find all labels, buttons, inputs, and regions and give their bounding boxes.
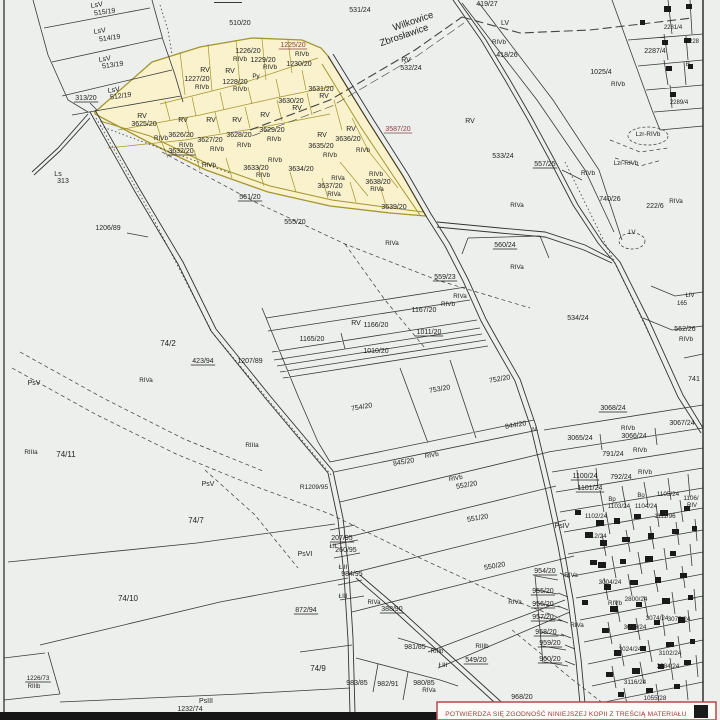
parcel-label: LV — [501, 20, 509, 27]
parcel-label: RIV — [687, 503, 697, 509]
parcel-label: 514/19 — [99, 34, 121, 44]
parcel-label: RIVb — [295, 51, 309, 58]
parcel-label: 752/20 — [489, 374, 511, 385]
parcel-label: 552/20 — [456, 480, 478, 491]
parcel-label: PsVI — [298, 551, 313, 558]
parcel-label: RIVa — [385, 240, 399, 247]
parcel-label: 2281/4 — [664, 25, 683, 31]
parcel-label: 1167/20 — [412, 307, 437, 314]
parcel-label: 792/24 — [610, 474, 632, 481]
parcel-label: R1209/95 — [300, 484, 329, 491]
parcel-label: 983/85 — [346, 680, 368, 687]
parcel-label: 2800/24 — [625, 596, 648, 603]
parcel-label: 3627/20 — [197, 137, 222, 144]
parcel-label: RIVa — [510, 202, 524, 209]
parcel-label: RIIIb — [28, 684, 41, 690]
parcel-label: 912/24 — [587, 533, 607, 540]
parcel-label: B — [686, 61, 690, 68]
parcel-label: 1225/20 — [280, 42, 305, 49]
parcel-label: RIVb — [638, 469, 652, 476]
parcel-label: 1165/20 — [300, 336, 325, 343]
parcel-label: RV — [351, 320, 361, 327]
parcel-label: Ls — [54, 171, 62, 178]
parcel-label: RIVb — [195, 84, 209, 91]
parcel-label: 741 — [688, 376, 700, 383]
parcel-label: PsIII — [199, 698, 213, 705]
parcel-label: 3074/24 — [646, 615, 669, 622]
parcel-label: RIVb — [424, 451, 439, 460]
parcel-label: 845/20 — [393, 457, 415, 468]
parcel-label: 1226/73 — [27, 675, 50, 682]
parcel-label: 1101/24 — [578, 485, 603, 492]
parcel-label: 207/95 — [331, 535, 353, 542]
parcel-label: 968/20 — [511, 694, 533, 701]
parcel-label: RIVb — [268, 157, 282, 164]
parcel-label: 531/24 — [349, 7, 371, 14]
parcel-label: 955/20 — [532, 588, 554, 595]
parcel-label: ŁIII — [339, 593, 348, 600]
parcel-label: RIVa — [368, 600, 382, 606]
parcel-label: 791/24 — [602, 451, 624, 458]
parcel-label: 3639/20 — [381, 204, 406, 211]
parcel-label: 3073/24 — [624, 624, 647, 631]
parcel-label: RIIIb — [431, 649, 444, 655]
parcel-label: 228 — [689, 39, 700, 45]
parcel-label: 1226/20 — [235, 48, 260, 55]
parcel-label: 1106/ — [683, 495, 699, 502]
parcel-label: 549/20 — [465, 657, 487, 664]
parcel-label: RIVb — [233, 56, 247, 63]
parcel-label: RIVb — [323, 152, 337, 159]
parcel-label: 956/20 — [532, 601, 554, 608]
parcel-label: 3626/20 — [168, 132, 193, 139]
parcel-label: Bo — [637, 493, 645, 499]
parcel-label: RIVb — [210, 146, 224, 153]
parcel-label: 1103/24 — [608, 503, 631, 510]
parcel-label: 980/85 — [413, 680, 435, 687]
parcel-label: 1229/20 — [250, 57, 275, 64]
parcel-label: Lzr-RIVb — [614, 160, 639, 167]
parcel-label: 423/94 — [192, 358, 214, 365]
parcel-label: RV — [232, 117, 242, 124]
parcel-label: RIVa — [370, 186, 384, 193]
parcel-label: 2289/4 — [670, 100, 689, 106]
parcel-label: 3066/24 — [621, 433, 646, 440]
parcel-label: 313 — [57, 178, 69, 185]
parcel-label: 510/20 — [229, 20, 251, 27]
parcel-label: Lzr-RIVb — [636, 131, 661, 138]
parcel-label: RIVb — [611, 81, 625, 88]
parcel-label: 954/20 — [534, 568, 556, 575]
parcel-label: 561/20 — [239, 194, 261, 201]
parcel-label: RIVb — [633, 447, 647, 454]
parcel-label: RIVa — [327, 191, 341, 198]
parcel-label: 260/95 — [335, 547, 357, 554]
parcel-label: RIVb — [608, 600, 622, 607]
parcel-label: RIVb — [154, 135, 168, 142]
parcel-label: RIVb — [202, 162, 216, 169]
parcel-label: 959/20 — [539, 640, 561, 647]
parcel-label: RV — [317, 132, 327, 139]
parcel-label: 532/24 — [400, 65, 422, 72]
parcel-label: 3632/20 — [168, 148, 193, 155]
parcel-label: 559/23 — [434, 274, 456, 281]
parcel-label: 560/24 — [494, 242, 516, 249]
parcel-label: 74/7 — [188, 516, 204, 525]
parcel-label: LV — [628, 229, 636, 236]
parcel-label: 1206/89 — [95, 225, 120, 232]
parcel-label: 3625/20 — [131, 121, 156, 128]
parcel-label: RIVa — [564, 572, 578, 579]
parcel-label: PsV — [202, 481, 215, 488]
parcel-label: 555/20 — [284, 219, 306, 226]
parcel-label: 957/20 — [532, 614, 554, 621]
parcel-label: 562/26 — [674, 326, 696, 333]
parcel-label: RIVa — [139, 377, 153, 384]
parcel-label: 1230/20 — [286, 61, 311, 68]
parcel-label: RIVa — [508, 599, 522, 606]
parcel-label: RIVb — [263, 64, 277, 71]
parcel-label: RIVa — [669, 198, 683, 205]
parcel-label: 1166/20 — [364, 322, 389, 329]
parcel-label: 1232/74 — [177, 706, 202, 713]
parcel-label: 984/95 — [341, 571, 363, 578]
parcel-label: 960/20 — [539, 656, 561, 663]
parcel-label: 3065/24 — [567, 435, 592, 442]
parcel-label: 557/25 — [534, 161, 556, 168]
parcel-label: 74/10 — [118, 594, 139, 603]
parcel-label: 844/20 — [505, 420, 527, 431]
parcel-label: 550/20 — [484, 561, 506, 572]
parcel-label: 1011/20 — [417, 329, 442, 336]
parcel-label: 222/6 — [646, 203, 664, 210]
parcel-label: 754/20 — [351, 402, 373, 413]
parcel-label: PsIV — [555, 523, 570, 530]
parcel-label: 3637/20 — [317, 183, 342, 190]
parcel-label: 3635/20 — [308, 143, 333, 150]
parcel-label: 1105/24 — [657, 491, 680, 498]
parcel-label: RIVa — [422, 687, 436, 694]
cadastral-map-canvas: POTWIERDZA SIĘ ZGODNOŚĆ NINIEJSZEJ KOPII… — [0, 0, 720, 720]
parcel-label: 3067/24 — [669, 420, 694, 427]
parcel-label: RIVb — [233, 86, 247, 93]
parcel-label: RIVa — [570, 622, 584, 629]
parcel-label: RIVb — [448, 474, 463, 483]
parcel-label: ŁIV — [685, 293, 694, 299]
parcel-label: 981/85 — [404, 644, 426, 651]
parcel-label: 419/27 — [476, 1, 498, 8]
parcel-label: 3630/20 — [278, 98, 303, 105]
parcel-label: RIIIa — [24, 449, 38, 456]
parcel-label: 3116/24 — [624, 679, 647, 686]
parcel-label: 872/94 — [295, 607, 317, 614]
parcel-label: 3004/24 — [599, 579, 622, 586]
cadastral-map-svg: POTWIERDZA SIĘ ZGODNOŚĆ NINIEJSZEJ KOPII… — [0, 0, 720, 720]
parcel-label: 388/90 — [381, 606, 403, 613]
parcel-label: 74/9 — [310, 664, 326, 673]
parcel-label: RV — [401, 57, 411, 64]
parcel-label: RIVb — [581, 170, 595, 177]
parcel-label: 1025/4 — [590, 69, 612, 76]
parcel-label: RV — [465, 118, 475, 125]
bottom-black-bar — [0, 712, 437, 720]
parcel-label: RV — [200, 67, 210, 74]
parcel-label: 418/26 — [496, 52, 518, 59]
parcel-label: 3075/24 — [668, 616, 691, 623]
parcel-label: RIVa — [331, 175, 345, 182]
parcel-label: RIVa — [453, 293, 467, 300]
parcel-label: RIVb — [237, 142, 251, 149]
parcel-label: PsV — [28, 380, 41, 387]
parcel-label: 533/24 — [492, 153, 514, 160]
parcel-label: RIVb — [356, 147, 370, 154]
parcel-label: RV — [225, 68, 235, 75]
parcel-label: RIVb — [369, 171, 383, 178]
parcel-label: RIVa — [510, 264, 524, 271]
parcel-label: 1010/20 — [363, 348, 388, 355]
parcel-label: RV — [346, 126, 356, 133]
parcel-label: ŁIII — [439, 662, 448, 669]
parcel-label: RIVb — [267, 136, 281, 143]
parcel-label: 165 — [677, 301, 688, 307]
parcel-label: 753/20 — [429, 384, 451, 395]
parcel-label: 313/20 — [75, 95, 97, 102]
stamp-box: POTWIERDZA SIĘ ZGODNOŚĆ NINIEJSZEJ KOPII… — [437, 702, 716, 720]
parcel-label: 1055/28 — [644, 695, 667, 702]
parcel-label: 515/19 — [94, 8, 116, 18]
parcel-label: 3102/24 — [659, 650, 682, 657]
parcel-label: RIIIb — [475, 643, 489, 650]
parcel-label: 74/11 — [56, 450, 76, 459]
parcel-label: 3629/20 — [259, 127, 284, 134]
parcel-label: 3068/24 — [600, 405, 625, 412]
parcel-label: RV — [319, 93, 329, 100]
parcel-label: 3638/20 — [365, 179, 390, 186]
parcel-label: 3024/24 — [619, 646, 642, 653]
parcel-label: RV — [260, 112, 270, 119]
parcel-label: 1104/24 — [635, 503, 658, 510]
parcel-label: 3084/24 — [657, 663, 680, 670]
parcel-label: RV — [292, 105, 302, 112]
parcel-label: RIIIa — [245, 442, 259, 449]
parcel-label: 74/2 — [160, 339, 176, 348]
parcel-label: 3633/20 — [243, 165, 268, 172]
parcel-label: N — [532, 427, 536, 433]
parcel-label: 2287/4 — [644, 48, 666, 55]
parcel-label: ŁIII — [339, 564, 348, 571]
parcel-label: 3634/20 — [288, 166, 313, 173]
parcel-label: RV — [178, 117, 188, 124]
parcel-label: 551/20 — [467, 513, 489, 524]
parcel-label: 1228/20 — [222, 79, 247, 86]
parcel-label: 1227/20 — [184, 76, 209, 83]
parcel-label: LsV — [93, 27, 106, 36]
parcel-label: 3628/20 — [226, 132, 251, 139]
parcel-label: RIVb — [621, 425, 635, 432]
parcel-label: 3636/20 — [335, 136, 360, 143]
parcel-label: RV — [137, 113, 147, 120]
parcel-label: 740/26 — [599, 196, 621, 203]
parcel-label: 1207/89 — [237, 358, 262, 365]
parcel-label: 1111/96 — [654, 513, 676, 520]
parcel-label: RIVb — [492, 39, 506, 46]
parcel-label: Py — [252, 73, 260, 80]
parcel-label: RIVb — [441, 301, 455, 308]
parcel-label: RIVb — [256, 172, 270, 179]
parcel-label: RIVb — [679, 336, 693, 343]
stamp-text: POTWIERDZA SIĘ ZGODNOŚĆ NINIEJSZEJ KOPII… — [445, 709, 687, 718]
parcel-label: 982/91 — [377, 681, 399, 688]
parcel-label: 3587/20 — [385, 126, 410, 133]
parcel-label: 958/20 — [535, 629, 557, 636]
parcel-label: 3631/20 — [308, 86, 333, 93]
parcel-label: 534/24 — [567, 315, 589, 322]
parcel-label: 1102/24 — [585, 513, 608, 520]
parcel-label: 1100/24 — [573, 473, 598, 480]
parcel-label: RV — [206, 117, 216, 124]
